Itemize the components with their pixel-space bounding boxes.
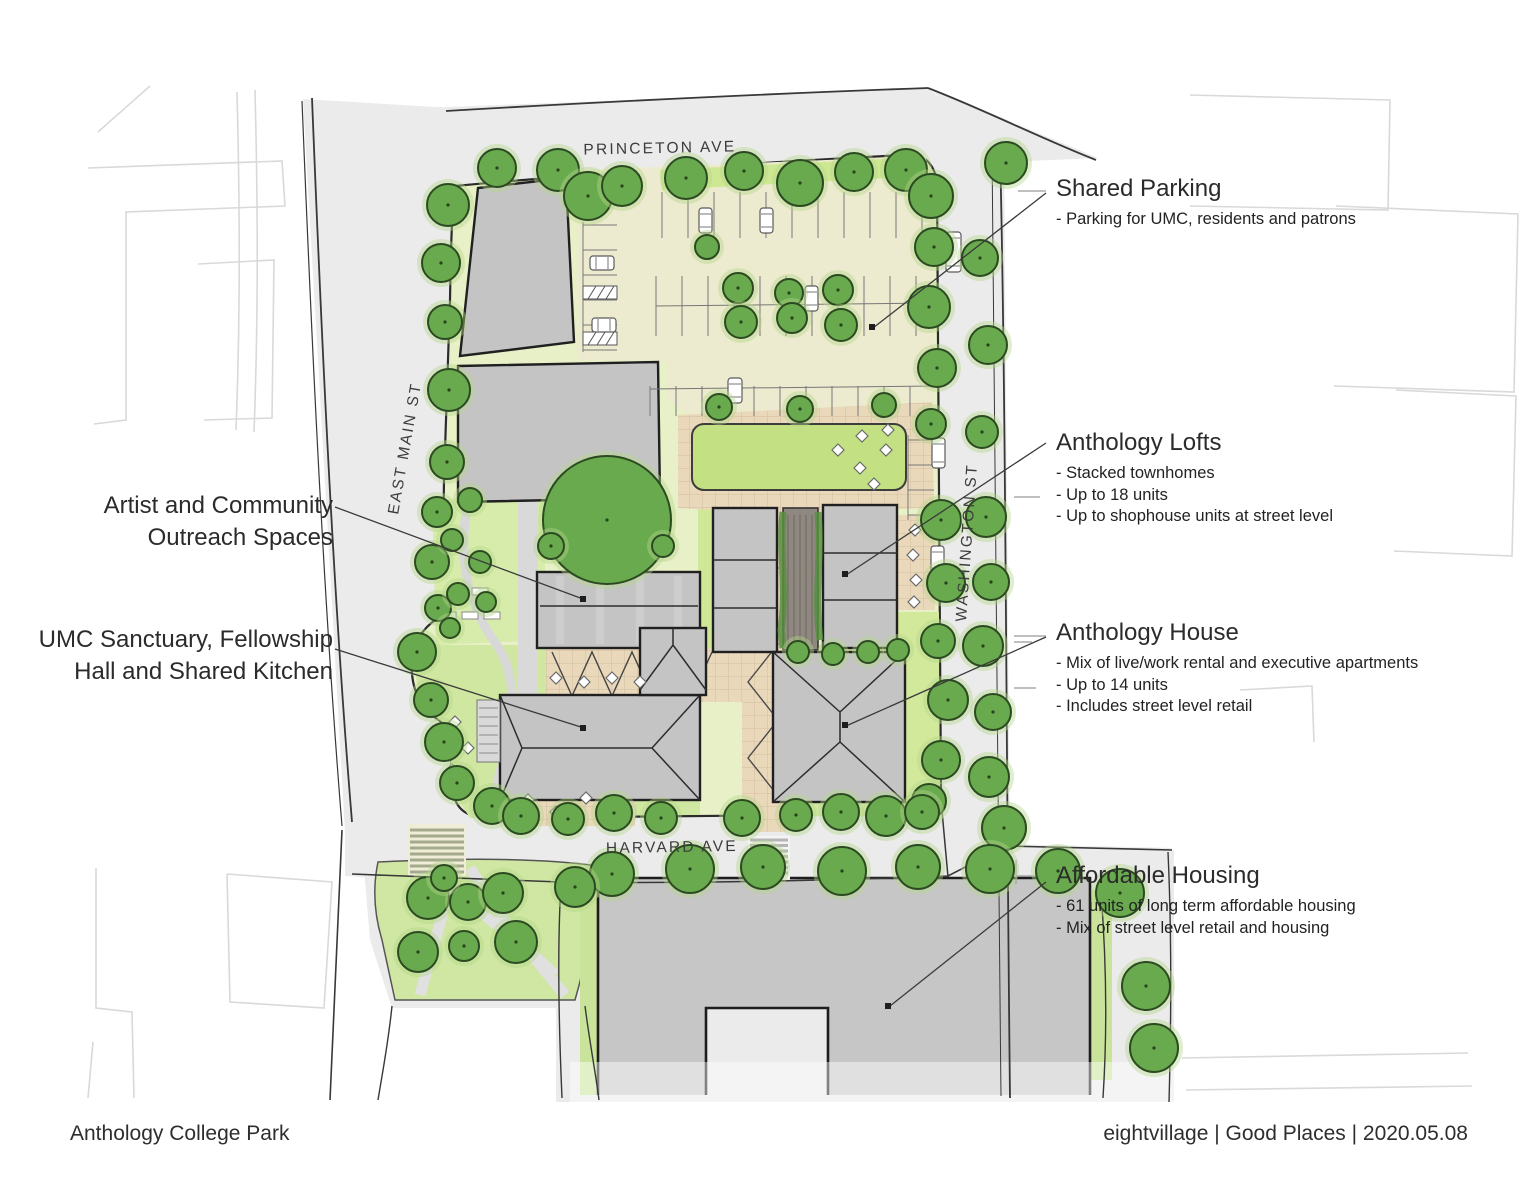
site-plan-page: PRINCETON AVE EAST MAIN ST WASHINGTON ST… (0, 0, 1536, 1187)
annotation-anthology-house: Anthology House - Mix of live/work renta… (1056, 618, 1418, 718)
label-line: Outreach Spaces (0, 522, 333, 554)
label-umc-sanctuary: UMC Sanctuary, Fellowship Hall and Share… (0, 624, 333, 688)
annotation-bullet: - Stacked townhomes (1056, 463, 1333, 485)
building-upper-left (460, 178, 574, 356)
street-label-harvard: HARVARD AVE (606, 838, 738, 857)
annotation-bullet: - Mix of street level retail and housing (1056, 918, 1356, 940)
building-anthology-lofts (713, 505, 897, 652)
plan-title: Anthology College Park (70, 1122, 289, 1146)
annotation-bullet: - Parking for UMC, residents and patrons (1056, 209, 1356, 231)
annotation-title: Shared Parking (1056, 174, 1356, 204)
label-line: UMC Sanctuary, Fellowship (0, 624, 333, 656)
building-anthology-house (773, 652, 905, 802)
annotation-shared-parking: Shared Parking - Parking for UMC, reside… (1056, 174, 1356, 231)
street-label-princeton: PRINCETON AVE (583, 138, 736, 158)
annotation-title: Affordable Housing (1056, 861, 1356, 891)
annotation-bullet: - Mix of live/work rental and executive … (1056, 653, 1418, 675)
annotation-bullet: - Up to 18 units (1056, 485, 1333, 507)
annotation-anthology-lofts: Anthology Lofts - Stacked townhomes - Up… (1056, 428, 1333, 528)
annotation-title: Anthology House (1056, 618, 1418, 648)
annotation-ticks (1014, 191, 1046, 884)
annotation-bullet: - Includes street level retail (1056, 696, 1418, 718)
label-line: Artist and Community (0, 490, 333, 522)
label-artist-outreach: Artist and Community Outreach Spaces (0, 490, 333, 554)
annotation-bullet: - Up to shophouse units at street level (1056, 506, 1333, 528)
annotation-bullet: - 61 units of long term affordable housi… (1056, 896, 1356, 918)
label-line: Hall and Shared Kitchen (0, 656, 333, 688)
annotation-bullet: - Up to 14 units (1056, 675, 1418, 697)
credit-line: eightvillage | Good Places | 2020.05.08 (1103, 1122, 1468, 1146)
annotation-affordable-housing: Affordable Housing - 61 units of long te… (1056, 861, 1356, 939)
annotation-title: Anthology Lofts (1056, 428, 1333, 458)
